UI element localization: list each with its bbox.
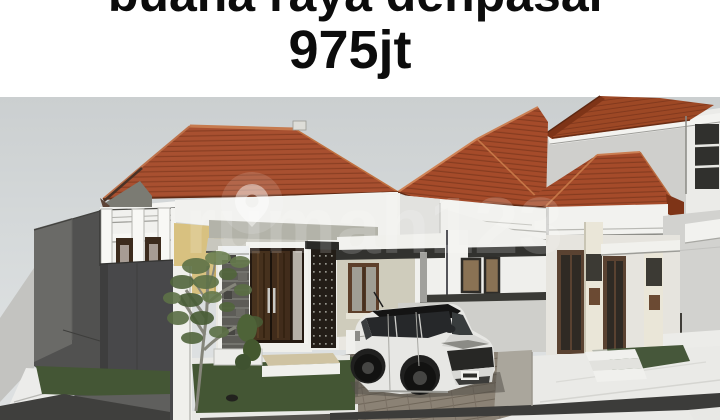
svg-text:rumah123: rumah123 [185,181,563,270]
svg-text:buana raya denpasar: buana raya denpasar [108,0,608,22]
svg-text:975jt: 975jt [288,20,411,80]
